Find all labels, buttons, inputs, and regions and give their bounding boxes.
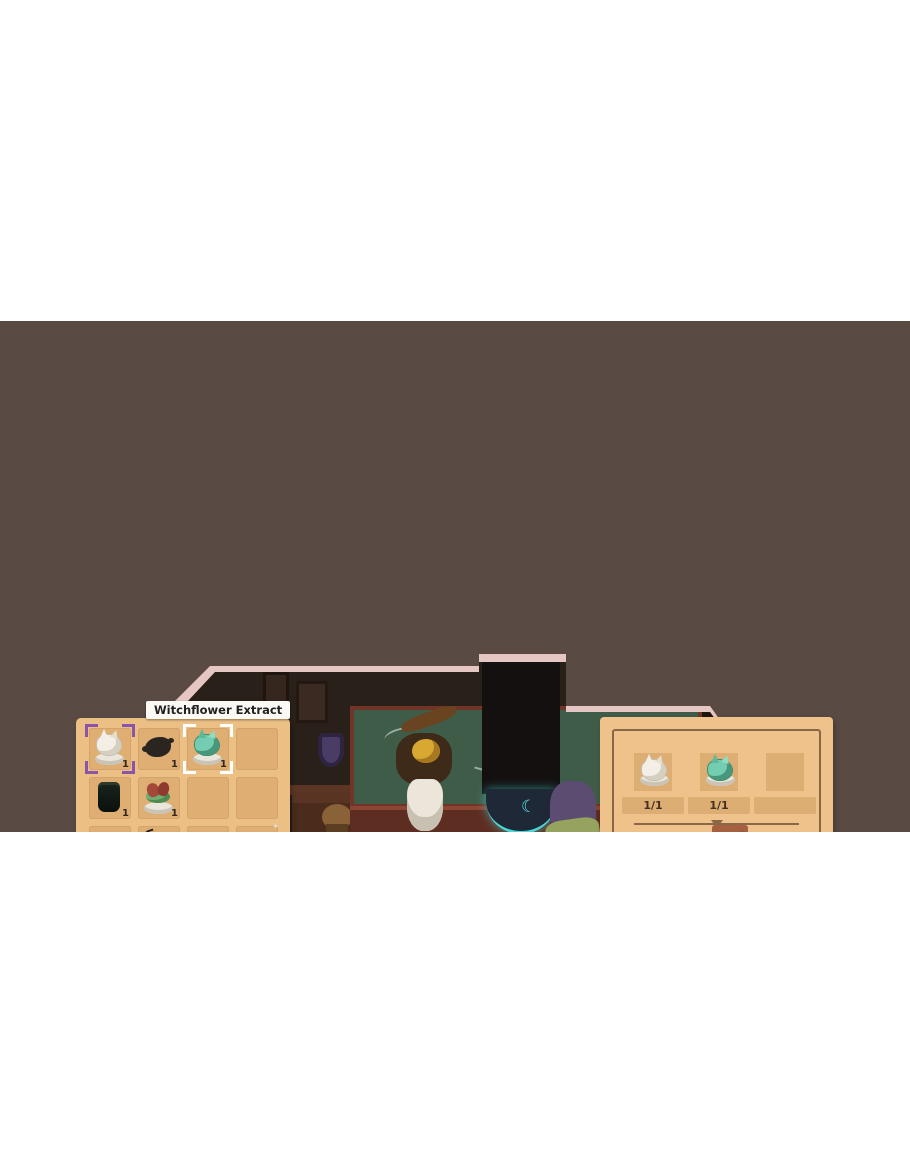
inventory-slot-2-ink-splat[interactable]: 1 [138,728,180,770]
item-extract-teal [700,753,738,791]
selection-corner [183,761,196,774]
inventory-slot-1-extract-white[interactable]: 1 [89,728,131,770]
selection-corner [220,724,233,737]
item-count: 1 [171,759,178,770]
selection-corner [85,761,98,774]
wall-picture-frame [263,672,289,704]
extract-teal-part [708,760,732,780]
selection-corner [220,761,233,774]
extract-white-part [642,760,666,780]
item-tooltip: Witchflower Extract [146,701,290,719]
recipe-slot-3[interactable] [766,753,804,791]
inventory-slot-6-dish-red[interactable]: 1 [138,777,180,819]
item-count: 1 [171,808,178,819]
recipe-qty-3 [754,797,816,814]
inventory-slot-11-feather[interactable]: 1 [187,826,229,832]
crescent-moon-icon: ☾ [521,789,536,825]
npc-podium [407,779,443,831]
npc-goat-head [412,739,440,763]
jar-dark-part [98,782,120,812]
hanging-banner [482,662,560,794]
extract-teal-part [195,735,219,755]
dish-red-part [144,802,173,814]
inventory-slot-10-beetle[interactable]: 1 [138,826,180,832]
wall-shield-emblem [318,733,344,767]
inventory-slot-7[interactable] [187,777,229,819]
wall-picture-frame [296,681,328,723]
ink-splat-part [145,737,171,757]
inventory-slot-9-mushrooms[interactable]: 5 [89,826,131,832]
inventory-slot-8[interactable] [236,777,278,819]
dish-red-part [146,790,170,803]
crafting-panel: 1/11/1 [600,717,833,832]
item-feather [187,826,229,832]
screenshot-stage: ☾ [0,0,910,1155]
recipe-slot-1-extract-white[interactable] [634,753,672,791]
wooden-stool-legs [326,824,348,832]
selection-corner [85,724,98,737]
inventory-panel: 111115111 [76,718,290,832]
inventory-slot-4[interactable] [236,728,278,770]
item-count: 1 [122,808,129,819]
crafting-inner-frame: 1/11/1 [612,729,821,832]
item-butterfly [236,826,278,832]
recipe-slot-2-extract-teal[interactable] [700,753,738,791]
extract-white-part [97,735,121,755]
item-extract-white [634,753,672,791]
selection-corner [122,724,135,737]
game-viewport: ☾ [0,321,910,832]
inventory-slot-12-butterfly[interactable]: 1 [236,826,278,832]
selection-corner [122,761,135,774]
inventory-slot-5-jar-dark[interactable]: 1 [89,777,131,819]
recipe-qty-1: 1/1 [622,797,684,814]
inventory-slot-3-extract-teal[interactable]: 1 [187,728,229,770]
recipe-qty-2: 1/1 [688,797,750,814]
item-beetle [138,826,180,832]
item-mushrooms [89,826,131,832]
selection-corner [183,724,196,737]
